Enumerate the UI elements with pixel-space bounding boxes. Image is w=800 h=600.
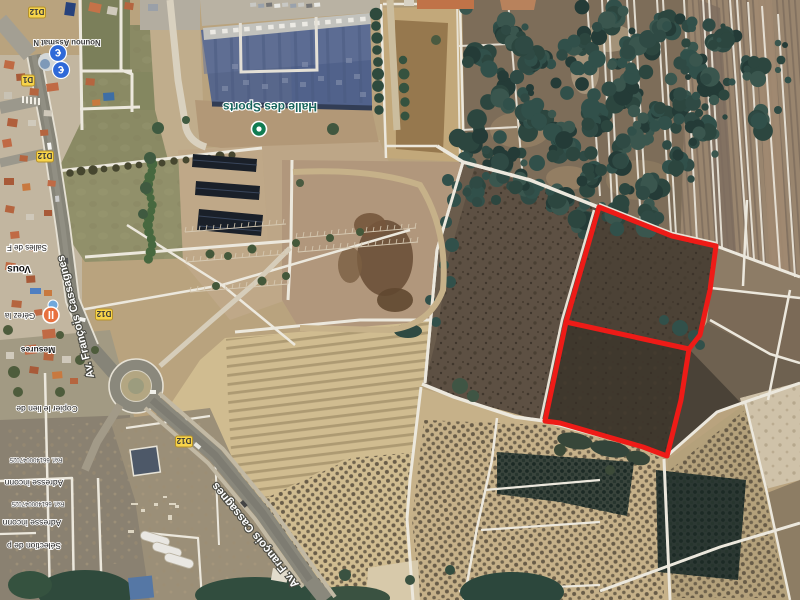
svg-text:Copier le lien de: Copier le lien de (16, 404, 78, 414)
svg-text:Mesures: Mesures (20, 345, 55, 355)
svg-text:Adresse inconn: Adresse inconn (4, 478, 63, 488)
svg-text:D1: D1 (22, 75, 33, 84)
svg-text:€: € (55, 46, 61, 58)
svg-text:Sélection de p: Sélection de p (7, 541, 61, 551)
svg-text:€: € (58, 63, 64, 75)
svg-text:D12: D12 (37, 151, 52, 160)
svg-text:Vous: Vous (7, 263, 31, 274)
svg-text:Adresse inconn: Adresse inconn (2, 518, 61, 528)
svg-text:D12: D12 (96, 309, 111, 318)
svg-text:D12: D12 (176, 436, 191, 445)
svg-text:Réf. 661400047025: Réf. 661400047025 (9, 456, 62, 462)
svg-text:Réf. 661400047025: Réf. 661400047025 (11, 500, 64, 506)
svg-text:Gérez la: Gérez la (4, 311, 35, 320)
svg-text:Nounou Assmat N: Nounou Assmat N (33, 38, 101, 47)
svg-text:Halle des Sports: Halle des Sports (223, 100, 317, 114)
svg-text:Salles de F: Salles de F (7, 243, 47, 252)
svg-text:D12: D12 (29, 7, 44, 16)
